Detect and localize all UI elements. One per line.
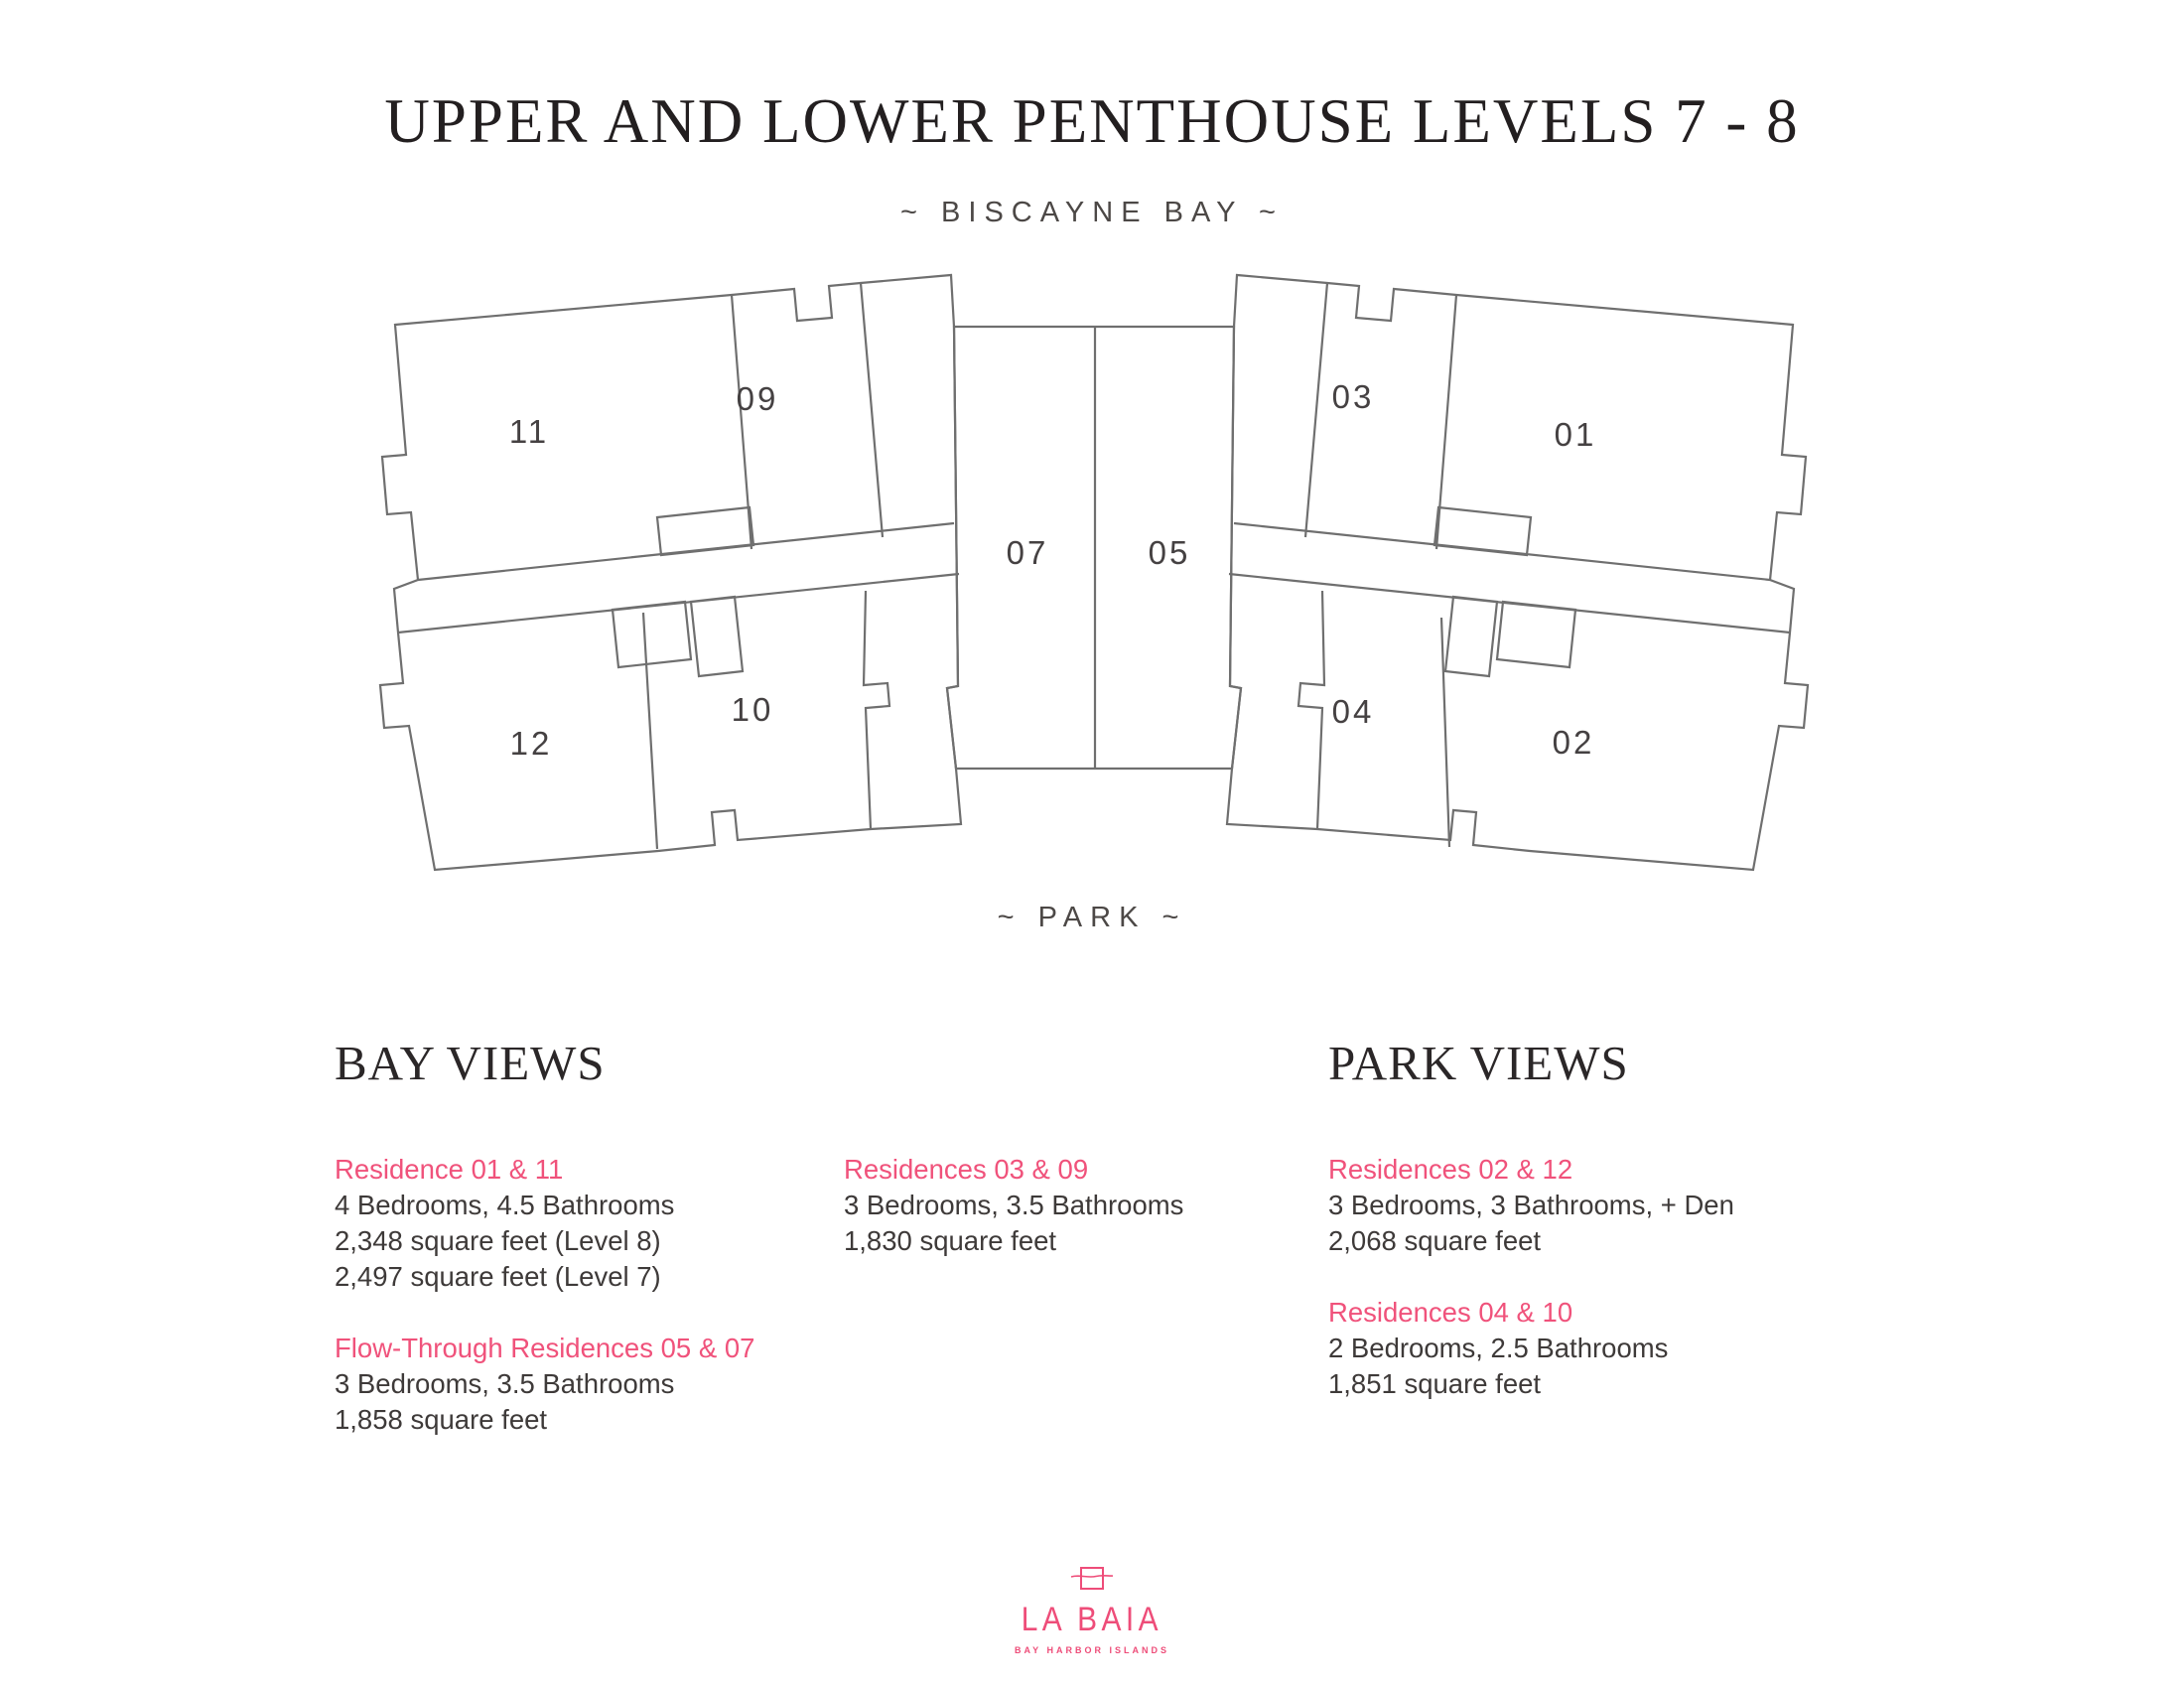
right-wing-walls [1229, 283, 1790, 676]
right-wing [1227, 275, 1808, 870]
unit-label-09: 09 [737, 380, 779, 418]
left-wing-outline [380, 275, 961, 870]
unit-label-05: 05 [1149, 534, 1191, 572]
unit-label-01: 01 [1555, 416, 1597, 454]
residence-block-title: Residences 02 & 12 [1328, 1152, 1805, 1188]
residence-block-title: Residence 01 & 11 [335, 1152, 811, 1188]
residence-block-03-09: Residences 03 & 09 3 Bedrooms, 3.5 Bathr… [844, 1152, 1320, 1259]
residence-block-title: Residences 04 & 10 [1328, 1295, 1805, 1331]
unit-label-11: 11 [509, 413, 549, 451]
residence-block-05-07: Flow-Through Residences 05 & 07 3 Bedroo… [335, 1331, 811, 1438]
unit-label-03: 03 [1332, 378, 1375, 416]
residence-detail-line: 1,830 square feet [844, 1223, 1320, 1259]
center-block [947, 327, 1241, 769]
left-wing-walls [398, 283, 959, 676]
la-baia-logo-name: LA BAIA [1022, 1601, 1162, 1639]
residence-block-04-10: Residences 04 & 10 2 Bedrooms, 2.5 Bathr… [1328, 1295, 1805, 1402]
bay-views-heading: BAY VIEWS [335, 1035, 606, 1091]
unit-label-10: 10 [732, 691, 774, 729]
floorplan-page: UPPER AND LOWER PENTHOUSE LEVELS 7 - 8 ~… [0, 0, 2184, 1688]
residence-detail-line: 2,497 square feet (Level 7) [335, 1259, 811, 1295]
bay-views-column-1: Residence 01 & 11 4 Bedrooms, 4.5 Bathro… [335, 1152, 811, 1438]
park-label: ~ PARK ~ [0, 902, 2184, 934]
floorplan-drawing [0, 0, 2184, 1688]
la-baia-logo-icon [1068, 1565, 1116, 1593]
left-wing [380, 275, 961, 870]
residence-detail-line: 3 Bedrooms, 3.5 Bathrooms [335, 1366, 811, 1402]
residence-block-02-12: Residences 02 & 12 3 Bedrooms, 3 Bathroo… [1328, 1152, 1805, 1259]
park-views-heading: PARK VIEWS [1328, 1035, 1629, 1091]
residence-block-title: Flow-Through Residences 05 & 07 [335, 1331, 811, 1366]
park-views-column: Residences 02 & 12 3 Bedrooms, 3 Bathroo… [1328, 1152, 1805, 1402]
la-baia-logo: LA BAIA BAY HARBOR ISLANDS [943, 1565, 1241, 1655]
right-wing-outline [1227, 275, 1808, 870]
residence-detail-line: 2,348 square feet (Level 8) [335, 1223, 811, 1259]
residence-detail-line: 3 Bedrooms, 3 Bathrooms, + Den [1328, 1188, 1805, 1223]
unit-label-07: 07 [1007, 534, 1049, 572]
residence-detail-line: 1,858 square feet [335, 1402, 811, 1438]
unit-label-12: 12 [510, 725, 553, 763]
unit-label-02: 02 [1553, 724, 1595, 762]
bay-views-column-2: Residences 03 & 09 3 Bedrooms, 3.5 Bathr… [844, 1152, 1320, 1259]
residence-detail-line: 1,851 square feet [1328, 1366, 1805, 1402]
residence-block-title: Residences 03 & 09 [844, 1152, 1320, 1188]
unit-label-04: 04 [1332, 693, 1375, 731]
residence-detail-line: 2,068 square feet [1328, 1223, 1805, 1259]
residence-detail-line: 3 Bedrooms, 3.5 Bathrooms [844, 1188, 1320, 1223]
residence-block-01-11: Residence 01 & 11 4 Bedrooms, 4.5 Bathro… [335, 1152, 811, 1295]
la-baia-logo-tagline: BAY HARBOR ISLANDS [943, 1645, 1241, 1655]
residence-detail-line: 2 Bedrooms, 2.5 Bathrooms [1328, 1331, 1805, 1366]
residence-detail-line: 4 Bedrooms, 4.5 Bathrooms [335, 1188, 811, 1223]
